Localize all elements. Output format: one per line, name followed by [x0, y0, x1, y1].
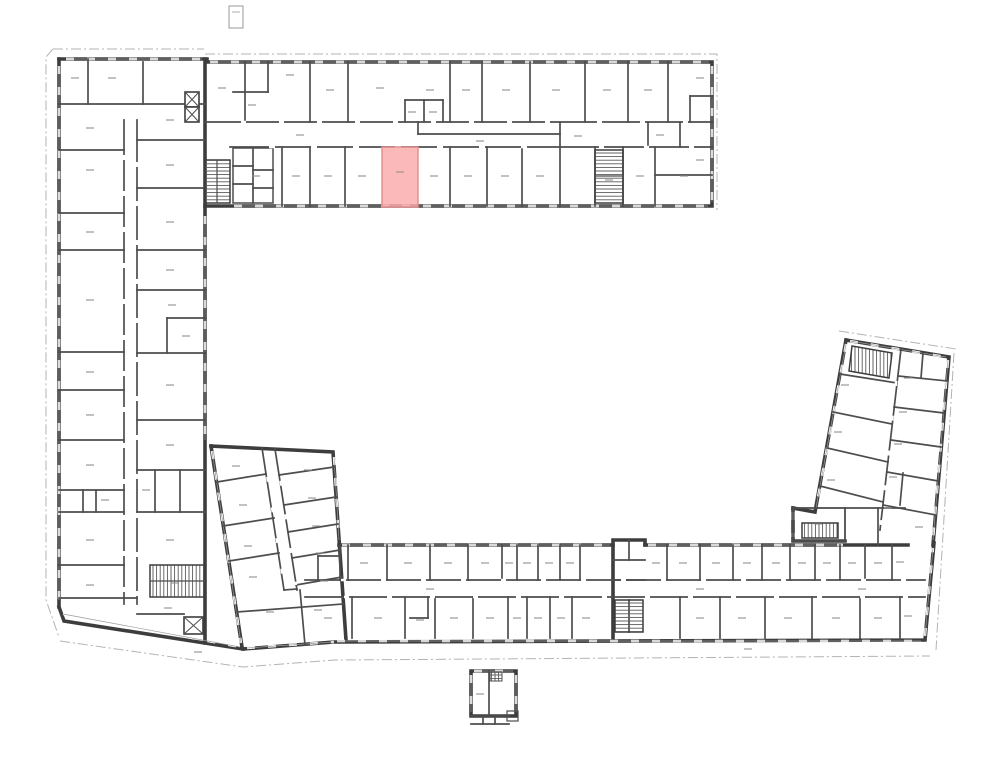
dimension-marks	[71, 75, 923, 694]
floor-plan-svg	[0, 0, 1000, 777]
stairwells	[150, 150, 892, 632]
highlighted-room[interactable]	[382, 147, 418, 207]
annotation-symbols	[229, 6, 243, 28]
elevators	[184, 92, 203, 634]
floor-plan-canvas	[0, 0, 1000, 777]
window-openings	[59, 59, 948, 712]
